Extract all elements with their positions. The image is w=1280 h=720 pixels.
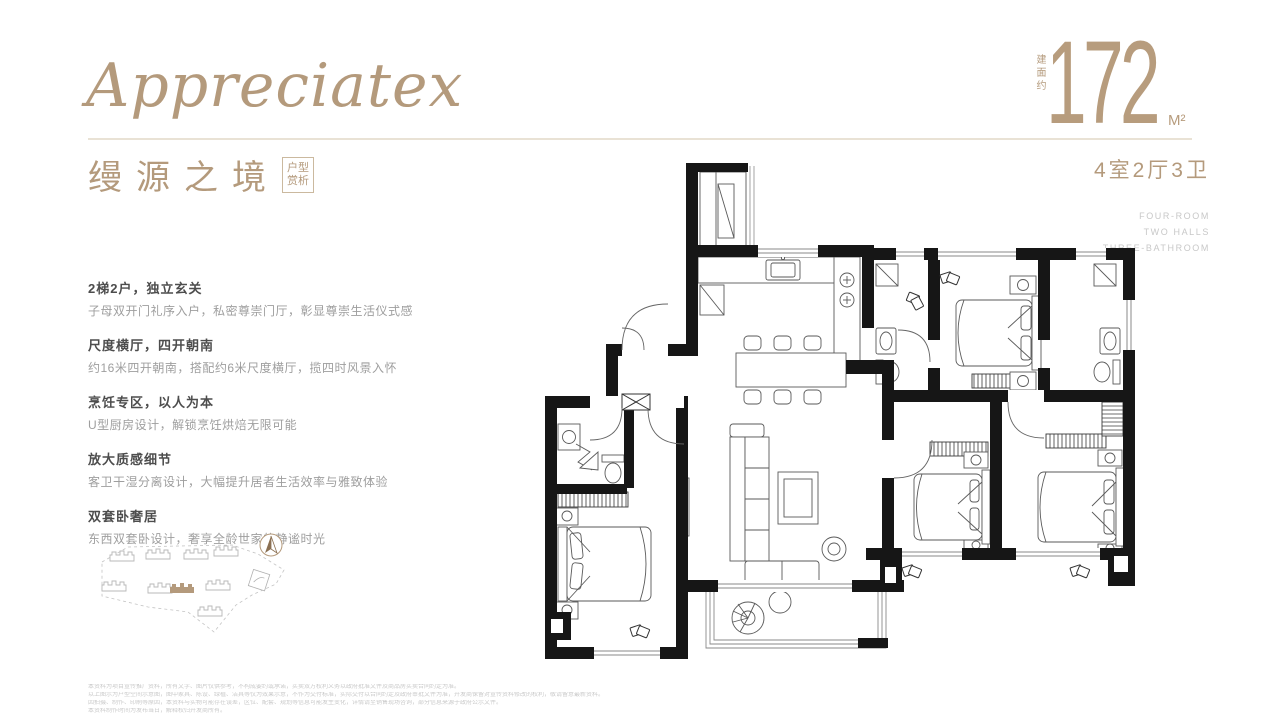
feature-item: 2梯2户，独立玄关 子母双开门礼序入户，私密尊崇门厅，彰显尊崇生活仪式感 — [88, 278, 438, 319]
area-figure: 建面约 172 M² — [1032, 30, 1202, 138]
badge-line-2: 赏析 — [287, 175, 309, 188]
feature-item: 放大质感细节 客卫干湿分离设计，大幅提升居者生活效率与雅致体验 — [88, 449, 438, 490]
feature-heading: 烹饪专区，以人为本 — [88, 392, 438, 411]
feature-body: 约16米四开朝南，搭配约6米尺度横厅，揽四时风景入怀 — [88, 359, 438, 376]
feature-heading: 2梯2户，独立玄关 — [88, 278, 438, 297]
disclaimer-line: 因拍摄、制作、印刷等原因，本资料与实物可能存在误差，区位、配套、规划等信息可能发… — [88, 700, 658, 707]
area-unit: M² — [1168, 112, 1186, 129]
feature-heading: 放大质感细节 — [88, 449, 438, 468]
site-plan — [85, 515, 305, 675]
title-row: 缦源之境 户型 赏析 — [88, 150, 314, 199]
feature-item: 尺度横厅，四开朝南 约16米四开朝南，搭配约6米尺度横厅，揽四时风景入怀 — [88, 335, 438, 376]
page-title: 缦源之境 — [88, 150, 280, 199]
feature-heading: 尺度横厅，四开朝南 — [88, 335, 438, 354]
disclaimer-line: 本资料制作时间为发布当日，解释权归开发商所有。 — [88, 708, 658, 715]
area-value: 172 — [1046, 24, 1157, 142]
compass-icon — [260, 534, 282, 556]
feature-body: 客卫干湿分离设计，大幅提升居者生活效率与雅致体验 — [88, 473, 438, 490]
floor-plan — [540, 155, 1140, 665]
disclaimer: 本资料为项目宣传推广资料，所有文字、图片仅供参考，不构成要约或承诺，买卖双方权利… — [88, 684, 658, 716]
feature-body: 子母双开门礼序入户，私密尊崇门厅，彰显尊崇生活仪式感 — [88, 302, 438, 319]
disclaimer-line: 本资料为项目宣传推广资料，所有文字、图片仅供参考，不构成要约或承诺，买卖双方权利… — [88, 684, 658, 691]
horizontal-divider — [88, 138, 1192, 140]
brochure-page: Appreciatex 缦源之境 户型 赏析 建面约 172 M² 4室2厅3卫… — [0, 0, 1280, 720]
title-badge: 户型 赏析 — [282, 157, 314, 193]
feature-body: U型厨房设计，解锁烹饪烘焙无限可能 — [88, 416, 438, 433]
badge-line-1: 户型 — [287, 162, 309, 175]
feature-item: 烹饪专区，以人为本 U型厨房设计，解锁烹饪烘焙无限可能 — [88, 392, 438, 433]
highlighted-building — [170, 583, 194, 593]
area-prefix: 建面约 — [1032, 54, 1047, 93]
disclaimer-line: 以上图示为户型空间示意图，图中家具、陈设、绿植、洁具等仅为效果示意，不作为交付标… — [88, 692, 658, 699]
script-logo: Appreciatex — [86, 38, 426, 134]
